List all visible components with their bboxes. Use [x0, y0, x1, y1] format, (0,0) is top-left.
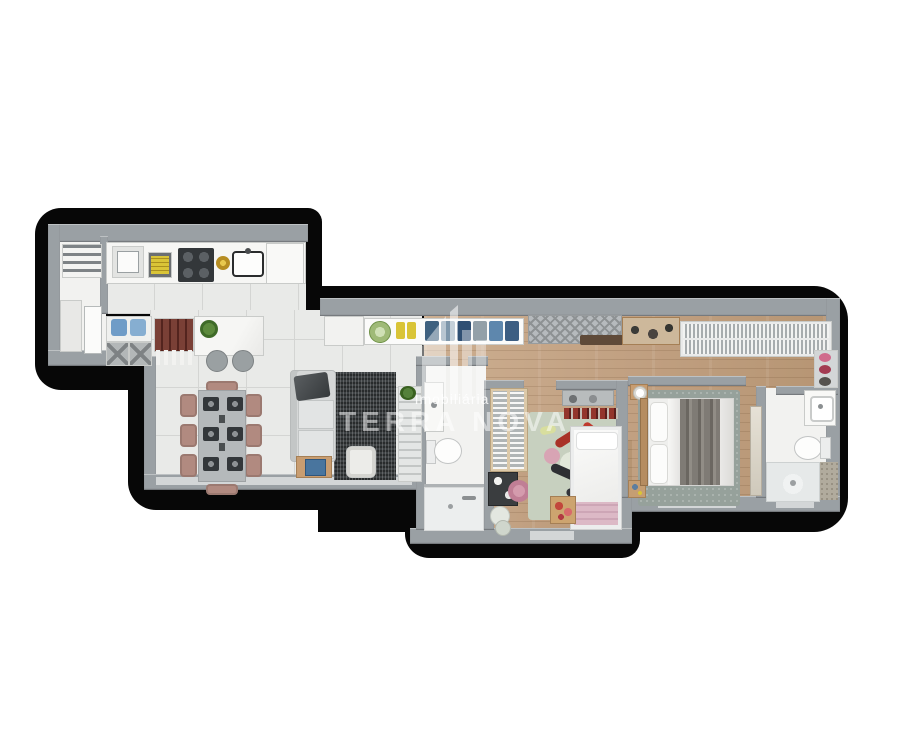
laundry-water-heater [60, 300, 82, 352]
table-centerpiece-2 [219, 443, 225, 451]
dining-chair-r3 [245, 454, 262, 477]
place-setting-5 [203, 457, 219, 471]
kids-wall-shelf [562, 390, 614, 406]
laundry-door [84, 306, 102, 354]
dining-chair-l1 [180, 394, 197, 417]
island-plant [200, 320, 218, 338]
kids-bed-pillow [576, 432, 618, 450]
tv-console [398, 386, 422, 482]
watermark-tower-logo [420, 304, 488, 400]
blue-towel-2 [130, 319, 146, 336]
master-pillow-1 [650, 402, 668, 442]
master-pillow-2 [650, 444, 668, 484]
master-toilet-tank [820, 437, 831, 459]
kids-pouf-white-2 [495, 520, 511, 536]
wardrobe-hanging-clothes-row-1 [683, 324, 829, 338]
master-bath-mat [820, 462, 838, 500]
blue-dish-5 [489, 321, 503, 341]
blue-towel-1 [111, 319, 127, 336]
shoe-item-red [819, 365, 831, 374]
kids-red-book-rail [564, 408, 618, 419]
master-vanity-faucet [818, 404, 823, 409]
place-setting-1 [203, 397, 219, 411]
master-decor-shelf [622, 317, 680, 345]
yellow-dish-rack [151, 256, 169, 274]
dining-chair-l2 [180, 424, 197, 447]
place-setting-4 [227, 427, 243, 441]
sofa-cushion-2 [298, 430, 334, 459]
bar-bottles-row [156, 350, 192, 365]
kids-closet-shelves-col1 [493, 391, 507, 469]
table-centerpiece-1 [219, 415, 225, 423]
kitchen-second-sink [232, 251, 264, 277]
kids-bed-pink-blanket [574, 502, 618, 525]
side-table-blue-art [305, 459, 326, 476]
sofa-cushion-1 [298, 400, 334, 429]
kids-rug-blob-pink [544, 448, 560, 464]
master-headboard [640, 398, 648, 486]
island-stool-2 [232, 350, 254, 372]
sofa-dark-throw [293, 372, 330, 401]
dining-chair-l3 [180, 454, 197, 477]
yellow-glass-2 [407, 322, 416, 339]
yellow-glass-1 [396, 322, 405, 339]
kids-closet-shelves-col2 [510, 391, 524, 469]
floor-plan: Imobiliária TERRA NOVA [0, 0, 900, 750]
kitchen-top-wall [48, 224, 308, 242]
hall-white-cabinet [324, 316, 364, 346]
bathroom2-shower [424, 484, 484, 531]
laundry-shelf-rack [62, 244, 102, 278]
dining-chair-head-bottom [206, 484, 238, 495]
master-shower-drain [790, 480, 796, 486]
place-setting-2 [227, 397, 243, 411]
blue-dish-6 [505, 321, 519, 341]
console-plant [400, 386, 416, 400]
master-toilet-bowl [794, 436, 822, 460]
living-left-wall [144, 356, 156, 486]
kids-flower-table [550, 496, 576, 524]
bathroom2-shower-drain [448, 504, 453, 509]
kids-rug-feather-olive [539, 424, 556, 435]
dining-chair-r2 [245, 424, 262, 447]
wardrobe-hanging-clothes-row-2 [683, 340, 829, 354]
x-front-cabinet-right [129, 342, 152, 366]
wine-bar-shelf [154, 318, 194, 352]
shoe-item-dark [819, 377, 831, 386]
master-leaning-mirror [750, 406, 762, 496]
shoe-item-pink [819, 353, 831, 362]
master-sheet-fold [720, 399, 733, 485]
armchair [346, 446, 376, 478]
master-sheet [668, 399, 680, 485]
kids-pink-chair [508, 480, 530, 502]
sink-faucet [245, 248, 251, 254]
bathroom2-shower-faucet [462, 496, 476, 500]
gold-pot [216, 256, 230, 270]
bathroom2-toilet-bowl [434, 438, 462, 464]
place-setting-3 [203, 427, 219, 441]
cooktop [178, 248, 214, 282]
hall-top-wall [320, 298, 838, 316]
dining-chair-r1 [245, 394, 262, 417]
green-plate [369, 321, 391, 343]
left-exterior-wall [48, 224, 60, 364]
bathroom2-vanity-faucet [431, 402, 437, 408]
kids-window-sill [530, 531, 574, 540]
island-stool-1 [206, 350, 228, 372]
kitchen-end-counter [266, 243, 304, 284]
kitchen-sink-basin [112, 246, 144, 278]
place-setting-6 [227, 457, 243, 471]
x-front-cabinet-left [106, 342, 129, 366]
master-vanity-basin [810, 396, 834, 422]
master-gray-blanket [680, 399, 720, 485]
